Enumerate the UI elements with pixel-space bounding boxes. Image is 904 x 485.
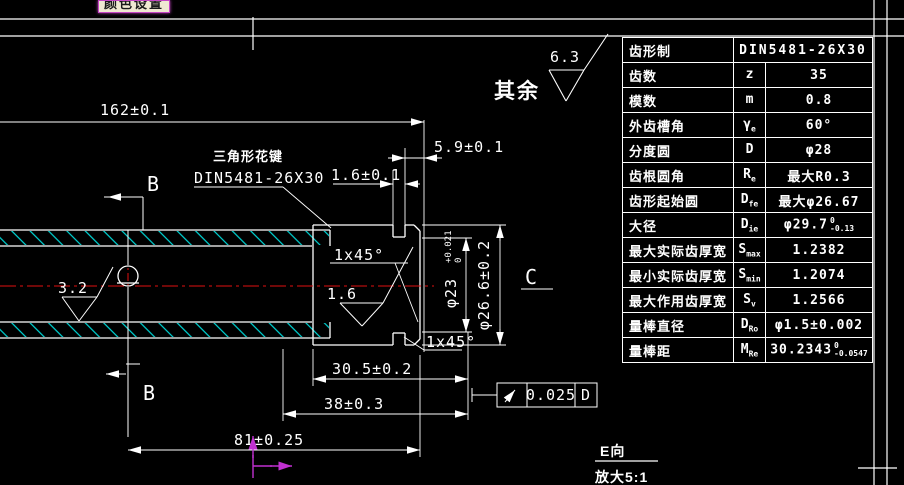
- spline-spec-table: 齿形制 DIN5481-26X30 齿数 z 35 模数 m 0.8 外齿槽角 …: [622, 37, 873, 363]
- table-row: 模数 m 0.8: [623, 88, 873, 113]
- row-value: 1.2382: [766, 238, 873, 263]
- dim-dia-26-6: φ26.6±0.2: [475, 240, 493, 330]
- section-label-top: B: [147, 172, 159, 196]
- row-symbol: Smin: [734, 263, 766, 288]
- row-value: 30.23430-0.0547: [766, 338, 873, 363]
- dim-length-162: 162±0.1: [100, 101, 170, 119]
- row-value: φ28: [766, 138, 873, 163]
- tooltip-text: 颜色设置: [99, 0, 169, 12]
- row-symbol: Smax: [734, 238, 766, 263]
- row-symbol: Die: [734, 213, 766, 238]
- row-value: DIN5481-26X30: [734, 38, 873, 63]
- dim-1-6: 1.6±0.1: [331, 166, 401, 184]
- table-row: 齿根圆角 Re 最大R0.3: [623, 163, 873, 188]
- detail-label-c: C: [525, 265, 537, 289]
- row-value: φ29.70-0.13: [766, 213, 873, 238]
- row-label: 齿形起始圆: [623, 188, 734, 213]
- row-symbol: D: [734, 138, 766, 163]
- circular-runout-icon: [505, 390, 515, 402]
- row-value: 1.2074: [766, 263, 873, 288]
- tooltip-clipped: 颜色设置: [98, 0, 170, 13]
- detail-view-title: E向: [600, 443, 625, 459]
- row-label: 量棒距: [623, 338, 734, 363]
- roughness-symbol-general: [549, 34, 608, 101]
- row-symbol: Sv: [734, 288, 766, 313]
- row-symbol: Dfe: [734, 188, 766, 213]
- table-row: 分度圆 D φ28: [623, 138, 873, 163]
- row-label: 量棒直径: [623, 313, 734, 338]
- table-row: 量棒距 MRe 30.23430-0.0547: [623, 338, 873, 363]
- row-symbol: Re: [734, 163, 766, 188]
- row-value: 60°: [766, 113, 873, 138]
- row-label: 齿数: [623, 63, 734, 88]
- detail-view-scale: 放大5:1: [594, 469, 648, 485]
- row-label: 最大实际齿厚宽: [623, 238, 734, 263]
- chamfer-callout-top: 1x45°: [334, 246, 384, 264]
- spline-callout-line2: DIN5481-26X30: [194, 169, 324, 187]
- table-row: 齿形起始圆 Dfe 最大φ26.67: [623, 188, 873, 213]
- roughness-value-3-2: 3.2: [58, 279, 88, 297]
- row-value: φ1.5±0.002: [766, 313, 873, 338]
- roughness-value-1-6: 1.6: [327, 285, 357, 303]
- dim-dia-23: φ23 +0.021 0: [442, 230, 464, 308]
- spline-callout-line1: 三角形花键: [213, 149, 283, 164]
- table-row: 最大实际齿厚宽 Smax 1.2382: [623, 238, 873, 263]
- dim-81: 81±0.25: [234, 431, 304, 449]
- gdt-tolerance: 0.025: [526, 386, 576, 404]
- roughness-general-prefix: 其余: [494, 79, 540, 103]
- table-row: 齿数 z 35: [623, 63, 873, 88]
- row-label: 齿根圆角: [623, 163, 734, 188]
- dim-dia-23-upper-tol: +0.021: [444, 230, 454, 263]
- dim-5-9: 5.9±0.1: [434, 138, 504, 156]
- dim-30-5: 30.5±0.2: [332, 360, 412, 378]
- shaft-outline: [0, 230, 330, 338]
- row-label: 最大作用齿厚宽: [623, 288, 734, 313]
- table-row: 外齿槽角 γe 60°: [623, 113, 873, 138]
- row-symbol: z: [734, 63, 766, 88]
- row-value: 35: [766, 63, 873, 88]
- row-label: 齿形制: [623, 38, 734, 63]
- gdt-datum: D: [581, 386, 591, 404]
- section-label-bottom: B: [143, 381, 155, 405]
- row-label: 外齿槽角: [623, 113, 734, 138]
- table-row: 齿形制 DIN5481-26X30: [623, 38, 873, 63]
- table-row: 大径 Die φ29.70-0.13: [623, 213, 873, 238]
- row-symbol: MRe: [734, 338, 766, 363]
- dim-dia-23-main: φ23: [442, 278, 460, 308]
- row-symbol: m: [734, 88, 766, 113]
- row-value: 最大φ26.67: [766, 188, 873, 213]
- table-row: 最大作用齿厚宽 Sv 1.2566: [623, 288, 873, 313]
- table-row: 量棒直径 DRo φ1.5±0.002: [623, 313, 873, 338]
- row-label: 模数: [623, 88, 734, 113]
- spline-callout-leader: [194, 187, 331, 228]
- row-value: 0.8: [766, 88, 873, 113]
- row-symbol: DRo: [734, 313, 766, 338]
- row-value: 最大R0.3: [766, 163, 873, 188]
- table-row: 最小实际齿厚宽 Smin 1.2074: [623, 263, 873, 288]
- roughness-general-value: 6.3: [550, 48, 580, 66]
- dim-dia-23-lower-tol: 0: [454, 258, 464, 263]
- dim-38: 38±0.3: [324, 395, 384, 413]
- row-value: 1.2566: [766, 288, 873, 313]
- chamfer-callout-bottom: 1x45°: [426, 333, 476, 351]
- row-label: 分度圆: [623, 138, 734, 163]
- row-label: 大径: [623, 213, 734, 238]
- section-hatching: [0, 231, 329, 337]
- row-symbol: γe: [734, 113, 766, 138]
- row-label: 最小实际齿厚宽: [623, 263, 734, 288]
